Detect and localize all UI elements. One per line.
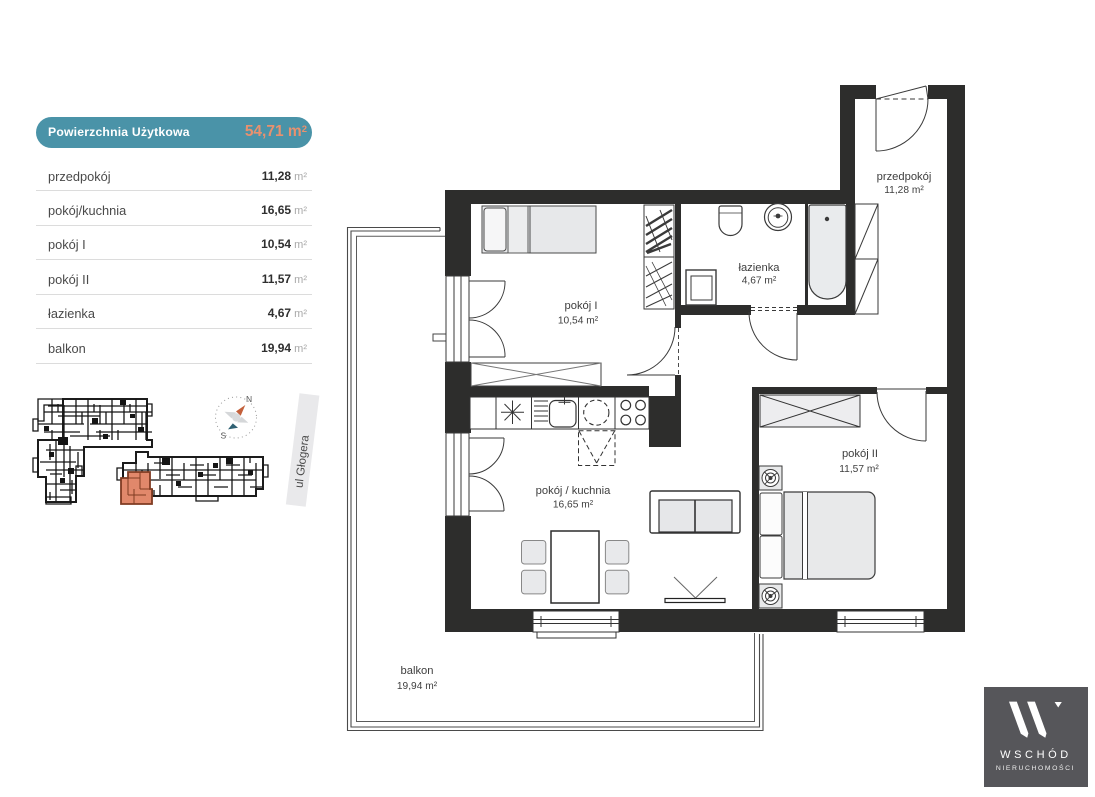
svg-text:pokój I: pokój I: [565, 300, 598, 312]
svg-text:WSCHÓD: WSCHÓD: [1000, 748, 1072, 761]
svg-text:10,54 m²: 10,54 m²: [558, 316, 599, 327]
svg-text:NIERUCHOMOŚCI: NIERUCHOMOŚCI: [996, 763, 1075, 772]
svg-text:4,67 m²: 4,67 m²: [742, 276, 777, 287]
svg-text:pokój / kuchnia: pokój / kuchnia: [536, 485, 611, 497]
svg-text:16,65 m²: 16,65 m²: [553, 500, 594, 511]
svg-text:pokój II: pokój II: [842, 448, 878, 460]
svg-text:19,94 m²: 19,94 m²: [397, 681, 438, 692]
svg-text:N: N: [246, 394, 252, 404]
svg-text:S: S: [221, 431, 227, 441]
svg-text:balkon: balkon: [401, 665, 434, 677]
svg-text:11,57 m²: 11,57 m²: [839, 464, 879, 475]
svg-text:przedpokój: przedpokój: [877, 171, 932, 183]
svg-text:łazienka: łazienka: [738, 262, 780, 274]
svg-text:11,28 m²: 11,28 m²: [884, 185, 924, 196]
